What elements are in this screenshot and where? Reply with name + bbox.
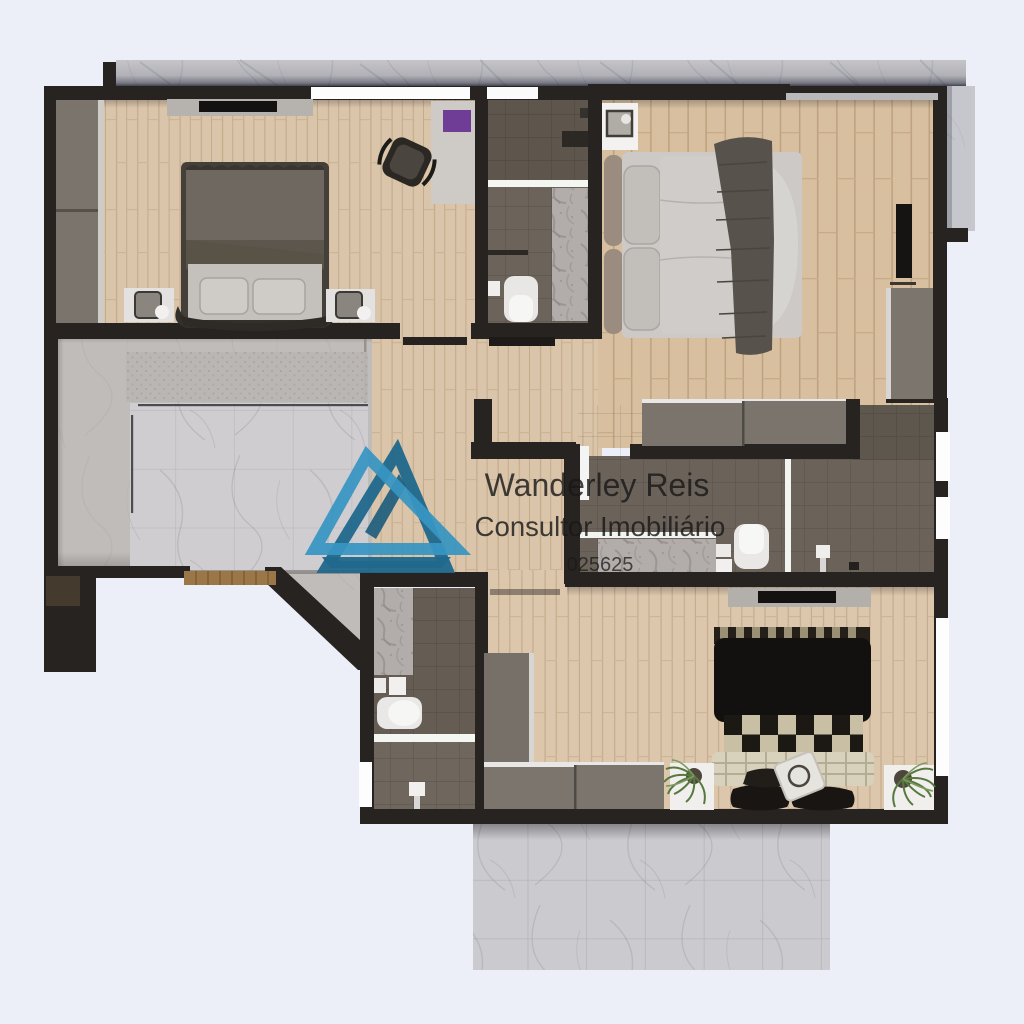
svg-text:Consultor Imobiliário: Consultor Imobiliário <box>475 511 726 542</box>
svg-text:Wanderley Reis: Wanderley Reis <box>485 467 710 503</box>
svg-text:025625: 025625 <box>567 554 634 576</box>
